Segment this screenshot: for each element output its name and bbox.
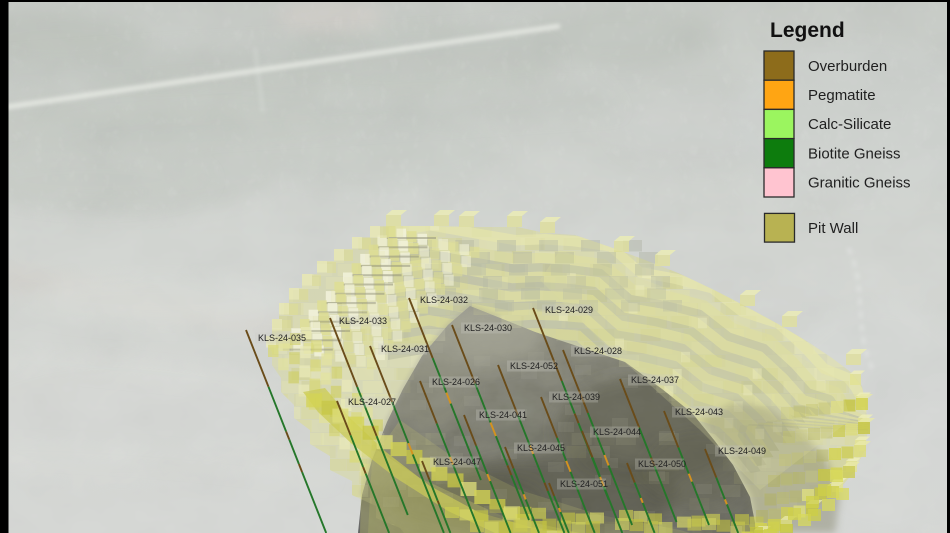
svg-text:Pit Wall: Pit Wall: [808, 220, 858, 237]
svg-text:Overburden: Overburden: [808, 58, 887, 75]
svg-text:KLS-24-032: KLS-24-032: [420, 295, 468, 305]
svg-text:KLS-24-050: KLS-24-050: [638, 459, 686, 469]
svg-text:KLS-24-047: KLS-24-047: [433, 457, 481, 467]
svg-text:Biotite Gneiss: Biotite Gneiss: [808, 145, 901, 162]
svg-text:KLS-24-028: KLS-24-028: [574, 346, 622, 356]
svg-text:KLS-24-041: KLS-24-041: [479, 410, 527, 420]
svg-text:Pegmatite: Pegmatite: [808, 87, 876, 104]
svg-text:KLS-24-051: KLS-24-051: [560, 479, 608, 489]
svg-text:KLS-24-026: KLS-24-026: [432, 377, 480, 387]
svg-text:KLS-24-045: KLS-24-045: [517, 443, 565, 453]
svg-text:KLS-24-035: KLS-24-035: [258, 333, 306, 343]
svg-text:KLS-24-039: KLS-24-039: [552, 392, 600, 402]
svg-text:KLS-24-037: KLS-24-037: [631, 375, 679, 385]
svg-text:KLS-24-030: KLS-24-030: [464, 323, 512, 333]
svg-text:KLS-24-031: KLS-24-031: [381, 344, 429, 354]
svg-text:Legend: Legend: [770, 19, 845, 42]
svg-text:KLS-24-049: KLS-24-049: [718, 446, 766, 456]
svg-text:KLS-24-033: KLS-24-033: [339, 316, 387, 326]
svg-text:KLS-24-052: KLS-24-052: [510, 361, 558, 371]
svg-text:Calc-Silicate: Calc-Silicate: [808, 116, 891, 133]
svg-text:KLS-24-044: KLS-24-044: [593, 427, 641, 437]
svg-text:KLS-24-029: KLS-24-029: [545, 305, 593, 315]
svg-text:KLS-24-027: KLS-24-027: [348, 397, 396, 407]
svg-text:Granitic Gneiss: Granitic Gneiss: [808, 175, 911, 192]
svg-text:KLS-24-043: KLS-24-043: [675, 407, 723, 417]
